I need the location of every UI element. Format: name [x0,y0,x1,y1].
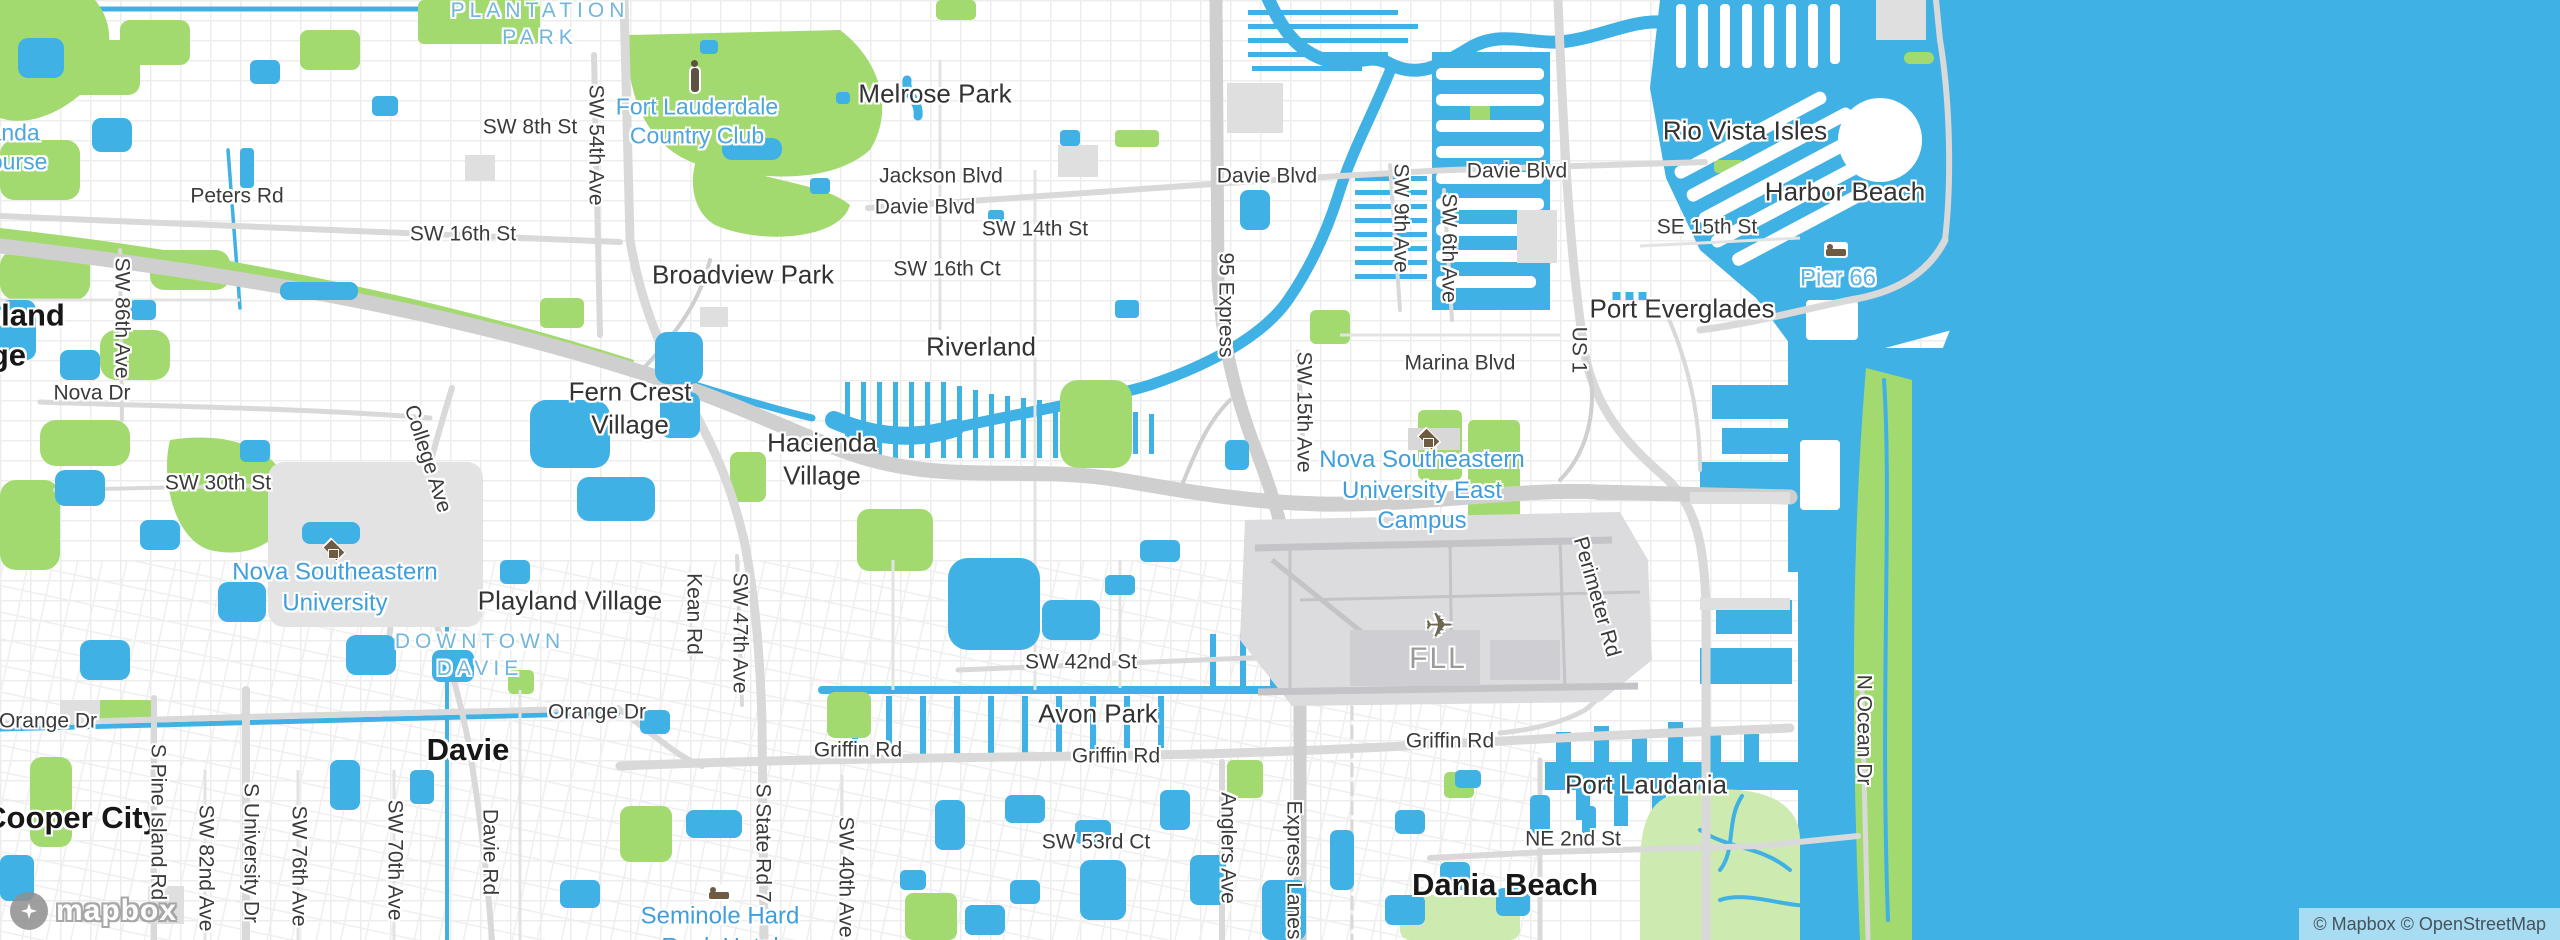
map-attribution[interactable]: © Mapbox © OpenStreetMap [2299,908,2560,940]
attribution-text: © Mapbox © OpenStreetMap [2313,914,2546,935]
mapbox-wordmark: mapbox [56,894,177,928]
mapbox-logo[interactable]: mapbox [10,892,177,930]
airport-layer [1240,512,1652,706]
map-canvas[interactable]: PLANTATION PARKJacaranda Golf CourseFort… [0,0,2560,940]
map-tiles [0,0,2560,940]
mapbox-pin-icon [10,892,48,930]
